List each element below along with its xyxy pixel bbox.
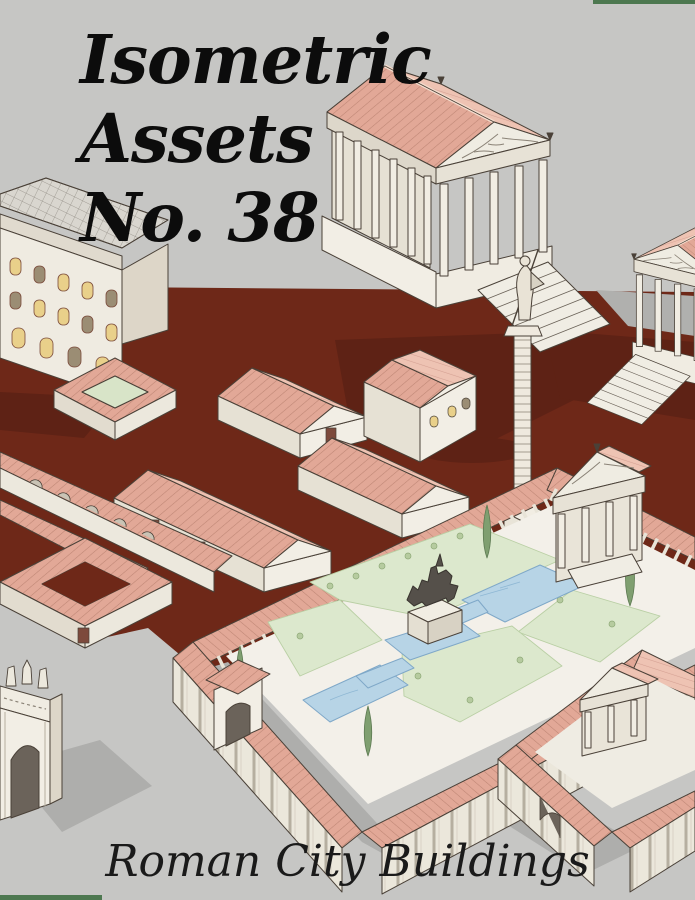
arch-statues — [6, 660, 48, 688]
page-subtitle: Roman City Buildings — [0, 836, 695, 887]
title-line-1: Isometric — [80, 20, 431, 99]
title-line-2: Assets — [80, 99, 431, 178]
accent-bar-top-right — [593, 0, 695, 4]
page-title: Isometric Assets No. 38 — [80, 20, 431, 257]
accent-bar-bottom-left — [0, 895, 102, 900]
cover-page: Isometric Assets No. 38 Roman City Build… — [0, 0, 695, 900]
title-line-3: No. 38 — [80, 178, 431, 257]
triumphal-arch — [0, 660, 62, 820]
